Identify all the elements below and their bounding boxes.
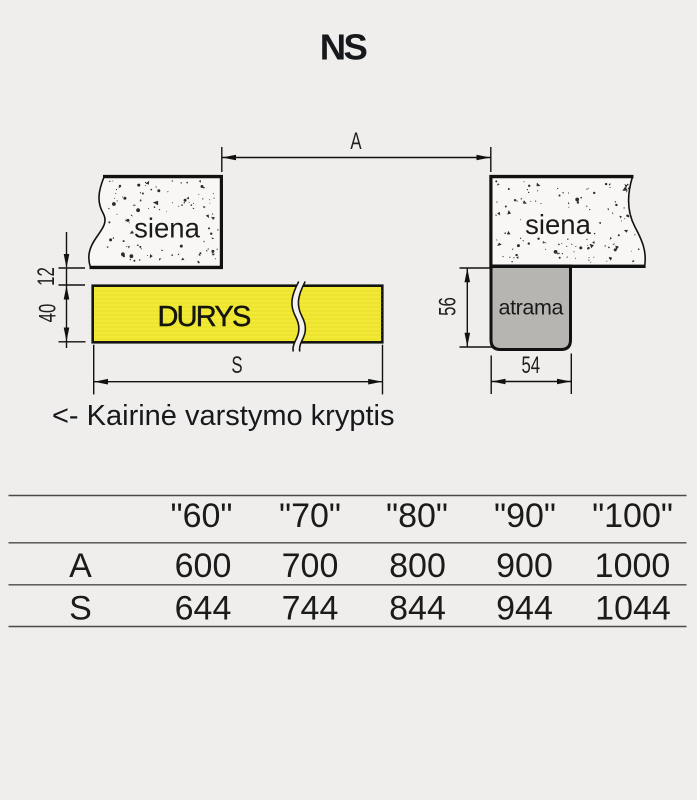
svg-text:700: 700 <box>282 547 339 585</box>
svg-text:siena: siena <box>525 209 591 240</box>
svg-text:900: 900 <box>496 547 553 585</box>
svg-text:"90": "90" <box>494 497 556 535</box>
svg-text:800: 800 <box>389 547 446 585</box>
svg-text:"80": "80" <box>386 497 448 535</box>
svg-text:944: 944 <box>496 590 553 628</box>
svg-text:<- Kairinė varstymo kryptis: <- Kairinė varstymo kryptis <box>52 400 394 432</box>
svg-text:56: 56 <box>435 297 462 316</box>
svg-text:844: 844 <box>389 590 446 628</box>
svg-text:1000: 1000 <box>595 547 671 585</box>
svg-text:"70": "70" <box>279 497 341 535</box>
svg-text:"60": "60" <box>171 497 233 535</box>
svg-text:54: 54 <box>521 352 540 379</box>
svg-text:A: A <box>69 547 92 585</box>
svg-text:DURYS: DURYS <box>158 301 251 333</box>
svg-text:atrama: atrama <box>499 296 564 320</box>
svg-text:A: A <box>350 128 361 155</box>
svg-text:S: S <box>69 590 92 628</box>
svg-text:40: 40 <box>35 304 62 323</box>
svg-text:S: S <box>231 352 242 379</box>
svg-text:600: 600 <box>175 547 232 585</box>
svg-text:siena: siena <box>134 213 200 244</box>
svg-text:NS: NS <box>320 27 367 68</box>
svg-text:1044: 1044 <box>595 590 671 628</box>
svg-text:644: 644 <box>175 590 232 628</box>
svg-text:744: 744 <box>282 590 339 628</box>
svg-text:"100": "100" <box>592 497 673 535</box>
svg-text:12: 12 <box>33 267 60 286</box>
